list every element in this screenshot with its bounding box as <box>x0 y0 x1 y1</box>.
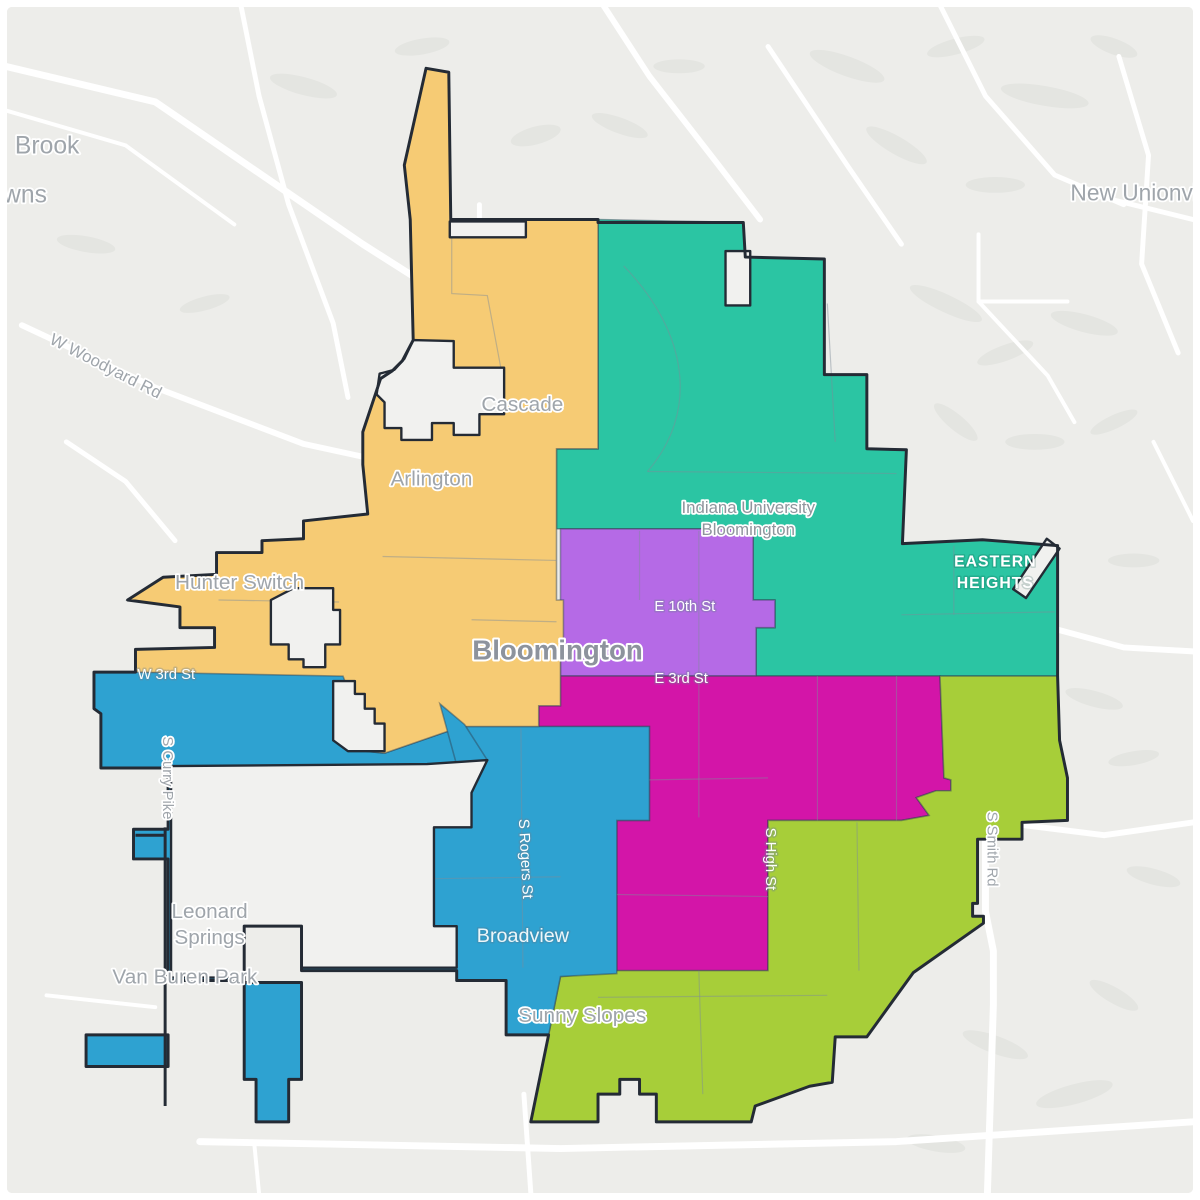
map-frame: Brook wns New Unionville W Woodyard Rd C… <box>0 0 1200 1200</box>
label-hunter-switch: Hunter Switch <box>175 571 304 594</box>
label-e-10th-st: E 10th St <box>654 599 715 615</box>
label-e-3rd-st: E 3rd St <box>654 671 708 687</box>
label-arlington: Arlington <box>390 467 472 490</box>
enclave-teal-notch <box>726 251 751 305</box>
label-w-3rd-st: W 3rd St <box>137 667 195 683</box>
label-s-high-st: S High St <box>762 828 778 891</box>
enclave-north-notch <box>450 221 526 237</box>
district-southwest-block[interactable] <box>86 1035 168 1067</box>
map-screenshot: Brook wns New Unionville W Woodyard Rd C… <box>0 0 1200 1200</box>
label-s-smith-rd: S Smith Rd <box>983 812 999 887</box>
label-cascade: Cascade <box>481 393 563 416</box>
label-leonard-springs-line2: Springs <box>174 926 244 949</box>
map-canvas[interactable]: Brook wns New Unionville W Woodyard Rd C… <box>7 7 1193 1193</box>
label-van-buren-park: Van Buren Park <box>112 965 258 988</box>
label-brook-line2: wns <box>7 182 47 209</box>
label-brook-line1: Brook <box>15 132 80 159</box>
label-iu-line2: Bloomington <box>702 520 795 539</box>
label-eastern-heights-line1: EASTERN <box>954 553 1036 570</box>
label-eastern-heights-line2: HEIGHTS <box>957 575 1034 592</box>
label-iu-line1: Indiana University <box>681 498 815 517</box>
label-sunny-slopes: Sunny Slopes <box>518 1004 646 1027</box>
label-leonard-springs-line1: Leonard <box>172 900 248 923</box>
label-bloomington-city: Bloomington <box>472 634 643 665</box>
label-new-unionville: New Unionville <box>1070 180 1193 206</box>
label-s-curry-pike: S Curry Pike <box>159 736 175 819</box>
label-broadview: Broadview <box>477 925 570 947</box>
